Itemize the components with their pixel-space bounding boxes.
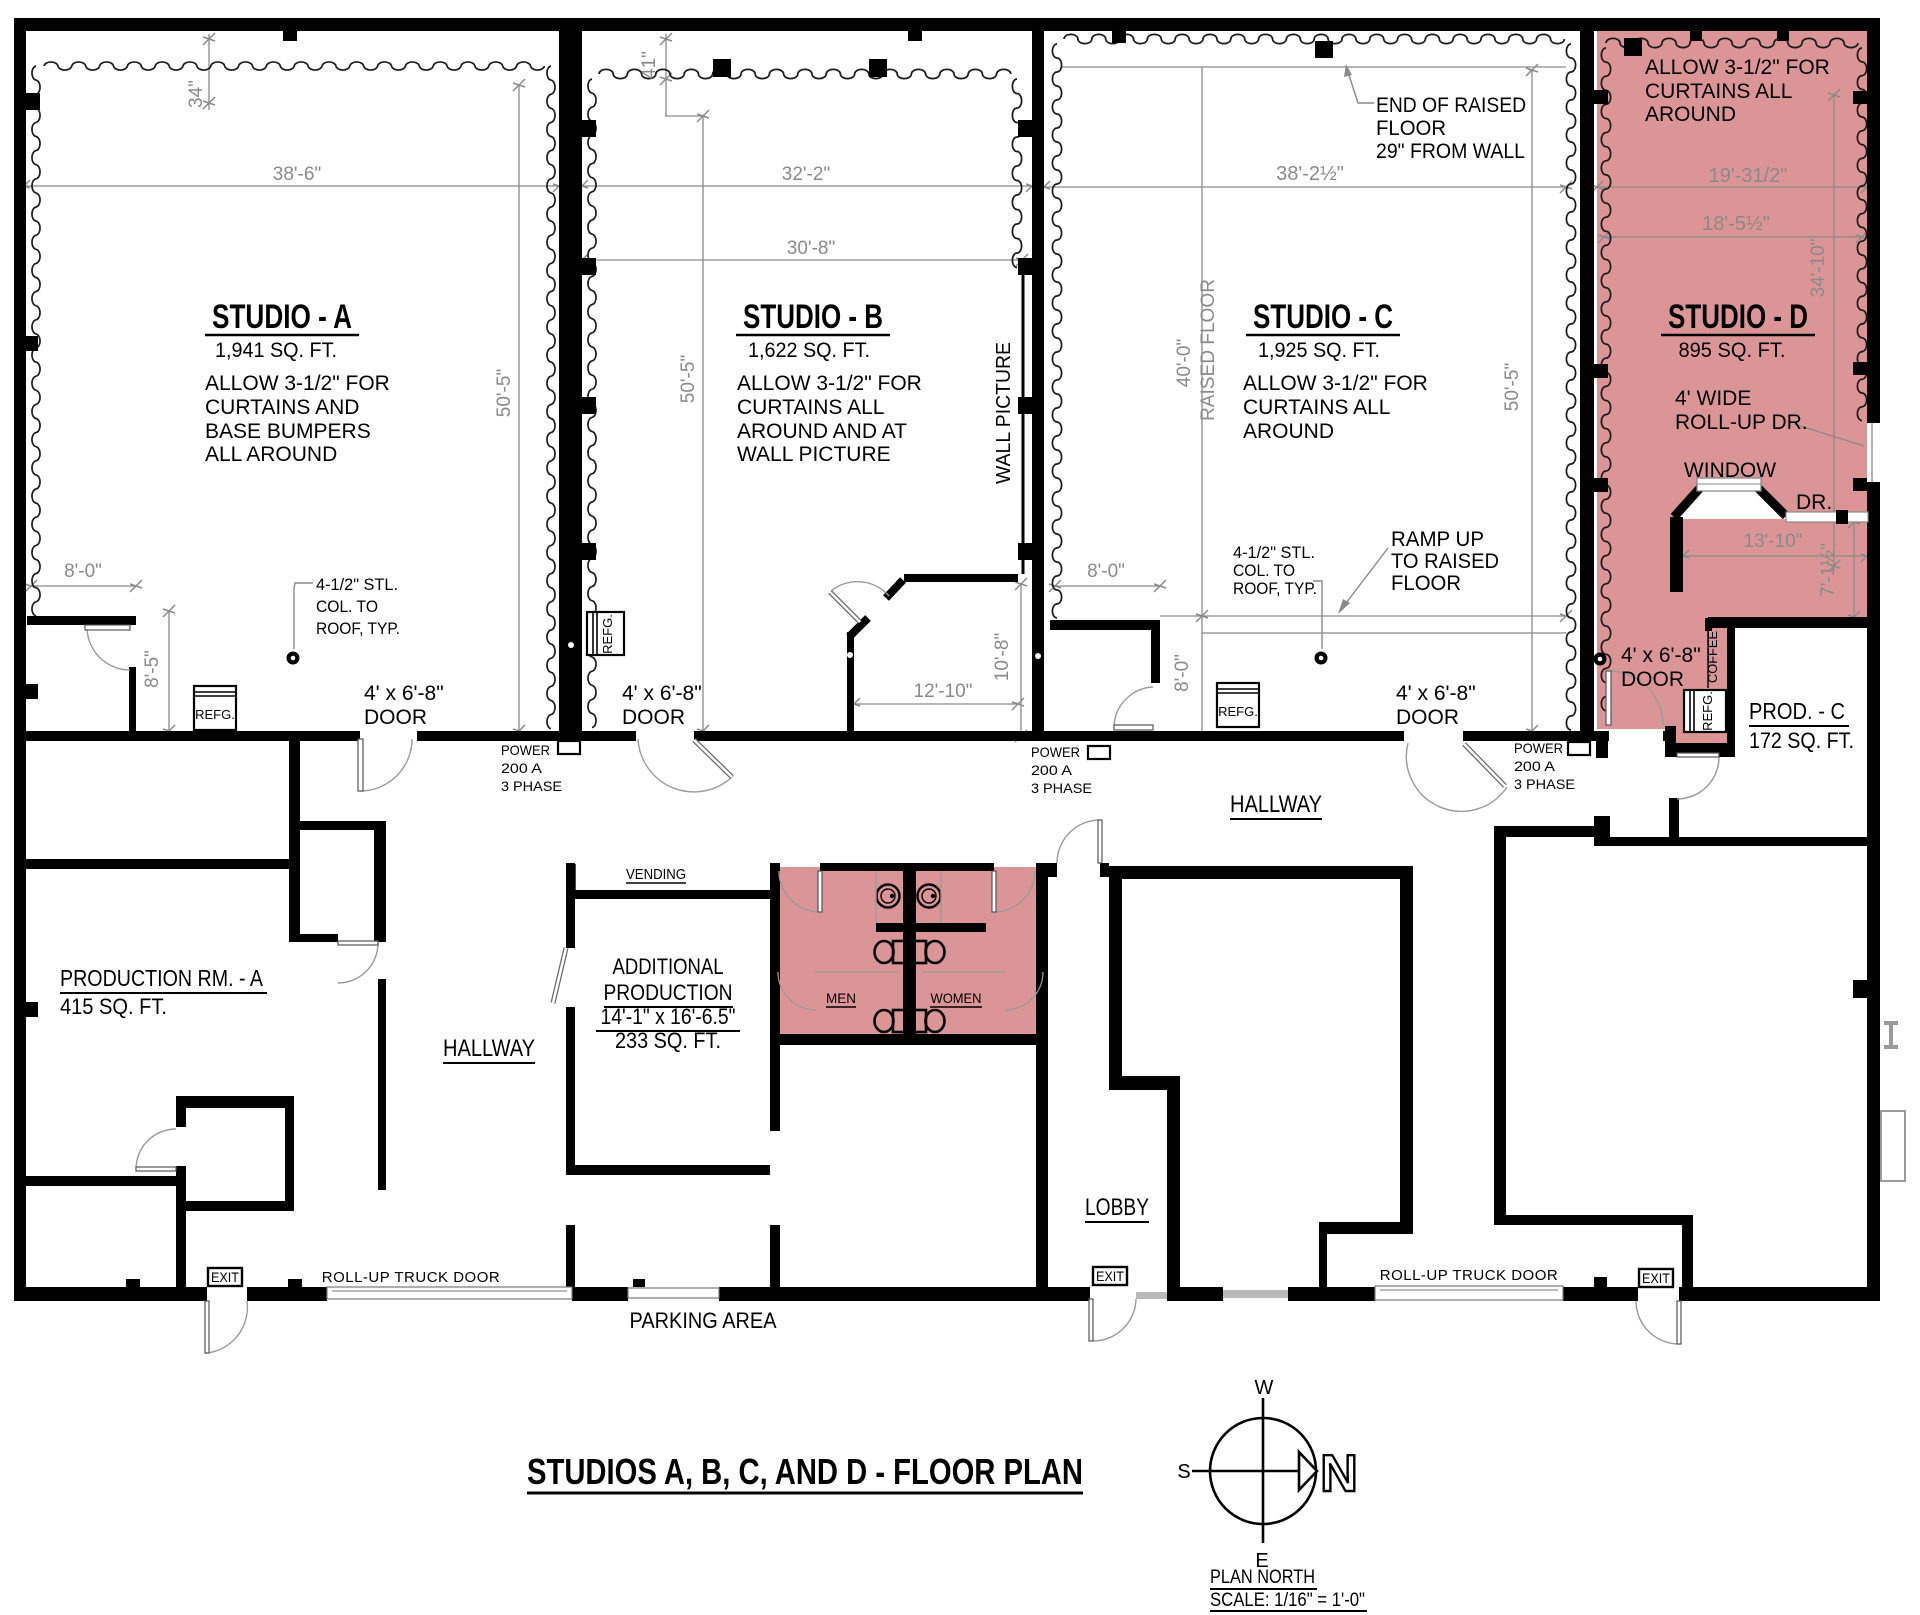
svg-text:PRODUCTION: PRODUCTION (604, 980, 733, 1005)
svg-text:1,925 SQ. FT.: 1,925 SQ. FT. (1258, 339, 1380, 362)
svg-text:PROD. - C: PROD. - C (1749, 698, 1845, 724)
svg-text:200 A: 200 A (501, 760, 543, 776)
svg-text:29" FROM WALL: 29" FROM WALL (1376, 140, 1525, 163)
svg-text:4' x 6'-8": 4' x 6'-8" (1396, 682, 1476, 705)
svg-text:S: S (1177, 1461, 1190, 1483)
svg-text:18'-5½": 18'-5½" (1702, 213, 1770, 235)
svg-text:DOOR: DOOR (1396, 706, 1459, 729)
svg-text:4' x 6'-8": 4' x 6'-8" (622, 682, 702, 705)
svg-text:AROUND AND AT: AROUND AND AT (737, 420, 907, 443)
svg-text:8'-5": 8'-5" (142, 650, 163, 688)
svg-text:POWER: POWER (1514, 740, 1563, 756)
svg-text:POWER: POWER (501, 742, 550, 758)
svg-text:DOOR: DOOR (364, 706, 427, 729)
svg-text:REFG.: REFG. (195, 707, 235, 722)
svg-text:VENDING: VENDING (626, 867, 686, 883)
svg-text:4-1/2" STL.: 4-1/2" STL. (1233, 543, 1315, 562)
svg-text:38'-6": 38'-6" (273, 164, 321, 185)
svg-text:3 PHASE: 3 PHASE (1514, 776, 1575, 792)
svg-text:50'-5": 50'-5" (1502, 363, 1523, 411)
svg-text:4' x 6'-8": 4' x 6'-8" (1621, 644, 1701, 667)
svg-text:4' WIDE: 4' WIDE (1675, 387, 1751, 410)
svg-text:AROUND: AROUND (1645, 103, 1736, 126)
svg-text:ALLOW 3-1/2" FOR: ALLOW 3-1/2" FOR (1645, 56, 1830, 79)
svg-text:STUDIO - C: STUDIO - C (1253, 298, 1393, 336)
svg-text:W: W (1255, 1377, 1274, 1399)
svg-text:FLOOR: FLOOR (1376, 117, 1446, 140)
svg-text:DOOR: DOOR (1621, 668, 1684, 691)
svg-text:STUDIO - D: STUDIO - D (1668, 298, 1808, 336)
svg-text:CURTAINS AND: CURTAINS AND (205, 396, 359, 419)
svg-text:REFG.: REFG. (1218, 704, 1258, 719)
svg-text:END OF RAISED: END OF RAISED (1376, 94, 1526, 117)
svg-text:12'-10": 12'-10" (914, 681, 973, 702)
svg-text:COL. TO: COL. TO (316, 597, 378, 616)
svg-text:4' x 6'-8": 4' x 6'-8" (364, 682, 444, 705)
svg-text:CURTAINS ALL: CURTAINS ALL (737, 396, 884, 419)
svg-text:32'-2": 32'-2" (782, 164, 830, 185)
svg-text:STUDIOS A, B, C, AND D - FLOOR: STUDIOS A, B, C, AND D - FLOOR PLAN (527, 1451, 1083, 1492)
svg-text:233 SQ. FT.: 233 SQ. FT. (615, 1028, 721, 1053)
svg-text:REFG.: REFG. (1700, 691, 1715, 731)
svg-text:STUDIO - B: STUDIO - B (743, 298, 883, 336)
svg-text:TO RAISED: TO RAISED (1391, 550, 1499, 573)
svg-text:BASE BUMPERS: BASE BUMPERS (205, 420, 371, 443)
svg-text:RAMP UP: RAMP UP (1391, 528, 1484, 551)
svg-text:1,941 SQ. FT.: 1,941 SQ. FT. (215, 339, 337, 362)
svg-text:WINDOW: WINDOW (1684, 459, 1776, 482)
svg-text:LOBBY: LOBBY (1085, 1194, 1149, 1221)
svg-text:34'-10": 34'-10" (1808, 239, 1829, 298)
svg-text:ALLOW 3-1/2" FOR: ALLOW 3-1/2" FOR (1243, 372, 1428, 395)
svg-text:895 SQ. FT.: 895 SQ. FT. (1679, 339, 1786, 362)
svg-text:40'-0": 40'-0" (1174, 339, 1195, 387)
svg-text:CURTAINS ALL: CURTAINS ALL (1645, 80, 1792, 103)
svg-text:19'-31/2": 19'-31/2" (1709, 165, 1788, 187)
svg-text:N: N (1320, 1445, 1358, 1503)
svg-text:AROUND: AROUND (1243, 420, 1334, 443)
svg-text:10'-8": 10'-8" (992, 633, 1013, 681)
svg-text:ROOF, TYP.: ROOF, TYP. (316, 619, 400, 638)
svg-text:EXIT: EXIT (211, 1269, 239, 1285)
svg-text:172 SQ. FT.: 172 SQ. FT. (1749, 728, 1854, 753)
svg-text:EXIT: EXIT (1096, 1268, 1124, 1284)
svg-text:ALLOW 3-1/2" FOR: ALLOW 3-1/2" FOR (205, 372, 390, 395)
svg-text:REFG.: REFG. (600, 614, 615, 654)
svg-text:13'-10": 13'-10" (1744, 531, 1803, 552)
svg-text:HALLWAY: HALLWAY (443, 1035, 535, 1062)
svg-text:38'-2½": 38'-2½" (1276, 163, 1344, 185)
svg-text:50'-5": 50'-5" (678, 355, 699, 403)
svg-text:3 PHASE: 3 PHASE (501, 778, 562, 794)
svg-text:WALL PICTURE: WALL PICTURE (737, 443, 891, 466)
svg-text:POWER: POWER (1031, 744, 1080, 760)
svg-text:41": 41" (639, 51, 660, 79)
svg-text:RAISED FLOOR: RAISED FLOOR (1198, 279, 1219, 421)
svg-text:ROLL-UP TRUCK DOOR: ROLL-UP TRUCK DOOR (1380, 1267, 1558, 1284)
svg-text:PARKING AREA: PARKING AREA (630, 1308, 777, 1333)
svg-text:ROLL-UP TRUCK DOOR: ROLL-UP TRUCK DOOR (322, 1269, 500, 1286)
svg-text:EXIT: EXIT (1642, 1270, 1670, 1286)
svg-text:WALL PICTURE: WALL PICTURE (993, 342, 1015, 484)
svg-text:50'-5": 50'-5" (494, 369, 515, 417)
svg-text:ALLOW 3-1/2" FOR: ALLOW 3-1/2" FOR (737, 372, 922, 395)
svg-text:ROOF, TYP.: ROOF, TYP. (1233, 579, 1317, 598)
svg-text:8'-0": 8'-0" (1172, 654, 1193, 692)
svg-text:8'-0": 8'-0" (64, 561, 102, 582)
svg-text:MEN: MEN (826, 990, 856, 1006)
svg-text:WOMEN: WOMEN (931, 990, 982, 1006)
svg-text:ALL AROUND: ALL AROUND (205, 443, 337, 466)
svg-text:3 PHASE: 3 PHASE (1031, 780, 1092, 796)
svg-text:PLAN NORTH: PLAN NORTH (1210, 1567, 1315, 1588)
svg-text:COFFEE: COFFEE (1705, 631, 1720, 683)
svg-text:PRODUCTION RM. - A: PRODUCTION RM. - A (60, 965, 264, 991)
svg-text:415 SQ. FT.: 415 SQ. FT. (60, 994, 167, 1019)
svg-text:200 A: 200 A (1031, 762, 1073, 778)
svg-text:DR.: DR. (1796, 491, 1832, 514)
svg-text:COL. TO: COL. TO (1233, 561, 1295, 580)
svg-text:STUDIO - A: STUDIO - A (212, 298, 352, 336)
svg-text:1,622 SQ. FT.: 1,622 SQ. FT. (748, 339, 870, 362)
svg-text:14'-1" x 16'-6.5": 14'-1" x 16'-6.5" (601, 1004, 736, 1029)
svg-text:200 A: 200 A (1514, 758, 1556, 774)
svg-text:30'-8": 30'-8" (787, 238, 835, 259)
svg-text:34": 34" (186, 80, 207, 108)
svg-text:4-1/2" STL.: 4-1/2" STL. (316, 575, 398, 594)
svg-text:FLOOR: FLOOR (1391, 572, 1461, 595)
svg-text:ADDITIONAL: ADDITIONAL (613, 954, 724, 979)
svg-text:7'-1½": 7'-1½" (1818, 543, 1839, 597)
svg-text:ROLL-UP DR.: ROLL-UP DR. (1675, 411, 1808, 434)
svg-text:SCALE: 1/16" = 1'-0": SCALE: 1/16" = 1'-0" (1210, 1590, 1365, 1611)
svg-text:DOOR: DOOR (622, 706, 685, 729)
svg-text:8'-0": 8'-0" (1087, 561, 1125, 582)
svg-text:CURTAINS ALL: CURTAINS ALL (1243, 396, 1390, 419)
svg-text:HALLWAY: HALLWAY (1230, 791, 1322, 818)
